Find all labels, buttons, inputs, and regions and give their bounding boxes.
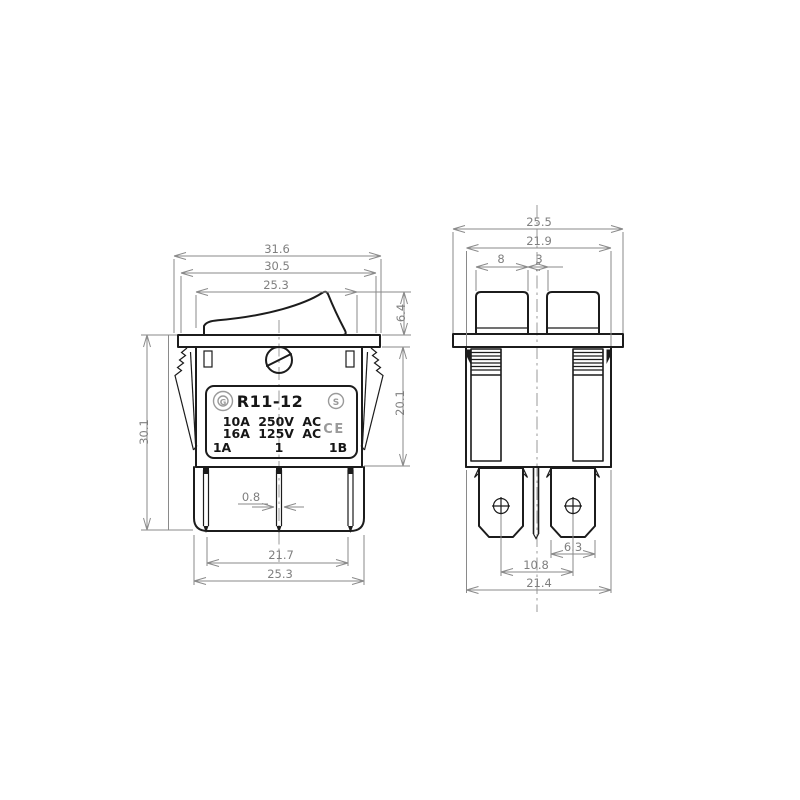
dim-terminal-thickness: 0.8 bbox=[242, 490, 260, 504]
dim-rocker-gap: 3 bbox=[535, 252, 542, 266]
model-number: R11-12 bbox=[237, 392, 304, 411]
terminal-mark-1a: 1A bbox=[213, 440, 232, 455]
rocker-actuator-profile bbox=[204, 292, 346, 335]
clip-inner-edge bbox=[363, 352, 368, 444]
front-view: G R11-12 S 10A 250V AC 16A 125V AC CE 1A… bbox=[137, 242, 411, 585]
terminal-mark-1: 1 bbox=[275, 440, 284, 455]
dim-base-width: 21.4 bbox=[526, 576, 552, 590]
mounting-flange-side bbox=[453, 334, 623, 347]
side-view: 25.5 21.9 8 3 6.3 10.8 21. bbox=[453, 205, 623, 612]
terminal-housing bbox=[194, 467, 364, 531]
terminal-blade bbox=[203, 468, 209, 533]
drawing-canvas: G R11-12 S 10A 250V AC 16A 125V AC CE 1A… bbox=[0, 0, 800, 800]
center-blade-tip bbox=[534, 534, 539, 539]
dim-side-body-width: 21.9 bbox=[526, 234, 552, 248]
left-slot bbox=[204, 351, 212, 367]
ce-mark: CE bbox=[323, 422, 344, 437]
clip-inner-edge bbox=[191, 352, 196, 444]
technical-drawing: G R11-12 S 10A 250V AC 16A 125V AC CE 1A… bbox=[0, 0, 800, 800]
right-clip-strip bbox=[573, 349, 611, 461]
right-slot bbox=[346, 351, 354, 367]
dim-rocker-width: 25.3 bbox=[263, 278, 289, 292]
dim-overall-height: 30.1 bbox=[137, 419, 151, 445]
dim-rocker-end-width: 8 bbox=[497, 252, 504, 266]
dim-body-width: 25.3 bbox=[267, 567, 293, 581]
side-dimensions: 25.5 21.9 8 3 6.3 10.8 21. bbox=[453, 215, 623, 593]
terminal-blade bbox=[348, 468, 354, 533]
dim-flange-top-width: 30.5 bbox=[264, 259, 290, 273]
right-mounting-clip bbox=[361, 348, 383, 450]
terminal-blade bbox=[276, 468, 282, 533]
clip-anchor bbox=[467, 350, 471, 365]
dim-side-flange-width: 25.5 bbox=[526, 215, 552, 229]
left-clip-strip bbox=[467, 349, 502, 461]
dim-terminal-center-spacing: 10.8 bbox=[523, 558, 549, 572]
dim-flange-width: 31.6 bbox=[264, 242, 290, 256]
left-mounting-clip bbox=[175, 348, 197, 450]
dim-body-height: 20.1 bbox=[393, 390, 407, 416]
front-terminal-blades bbox=[203, 468, 354, 533]
cert-s-letter: S bbox=[333, 398, 339, 408]
cert-g-letter: G bbox=[220, 398, 227, 407]
dim-rocker-height: 6.4 bbox=[394, 304, 408, 322]
clip-serrations bbox=[573, 353, 603, 376]
clip-anchor bbox=[607, 350, 611, 365]
rating-line-2: 16A 125V AC bbox=[223, 426, 321, 441]
label-plate: G R11-12 S 10A 250V AC 16A 125V AC CE 1A… bbox=[206, 386, 357, 458]
clip-serrations bbox=[471, 353, 501, 376]
terminal-mark-1b: 1B bbox=[329, 440, 347, 455]
dim-terminal-span: 21.7 bbox=[268, 548, 294, 562]
